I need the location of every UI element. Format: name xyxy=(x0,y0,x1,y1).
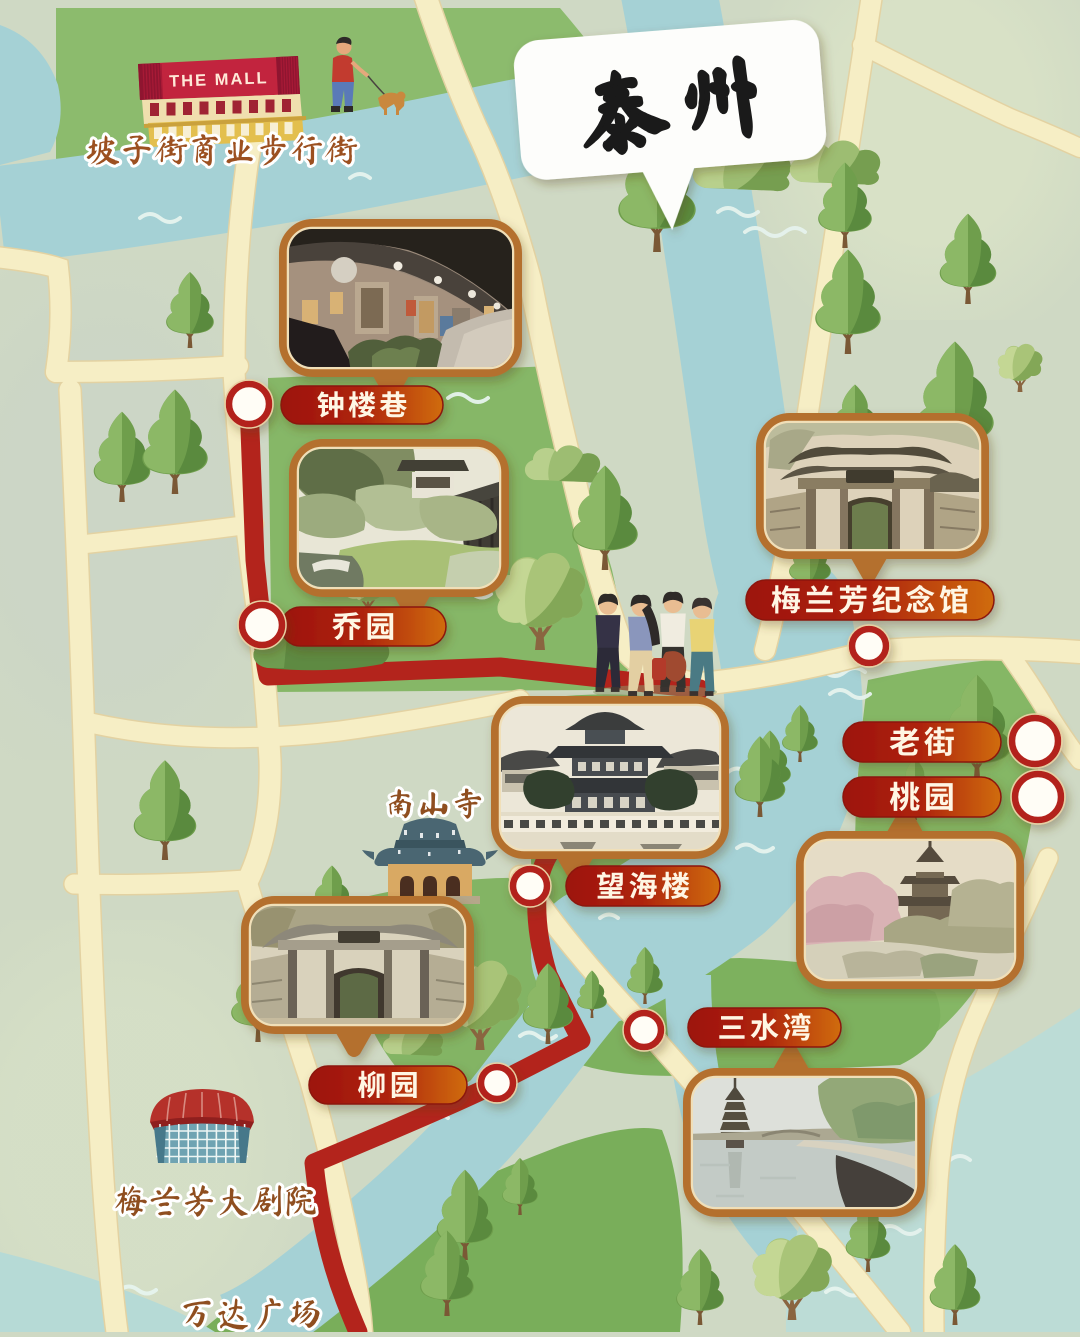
svg-text:THE MALL: THE MALL xyxy=(169,69,269,90)
